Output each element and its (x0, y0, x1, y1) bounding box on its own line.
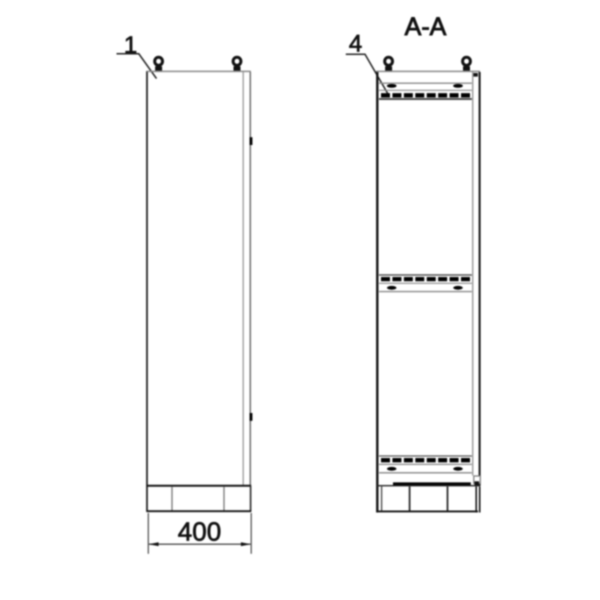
svg-text:1: 1 (124, 32, 137, 59)
svg-text:A-A: A-A (405, 13, 447, 41)
svg-text:400: 400 (178, 517, 221, 547)
